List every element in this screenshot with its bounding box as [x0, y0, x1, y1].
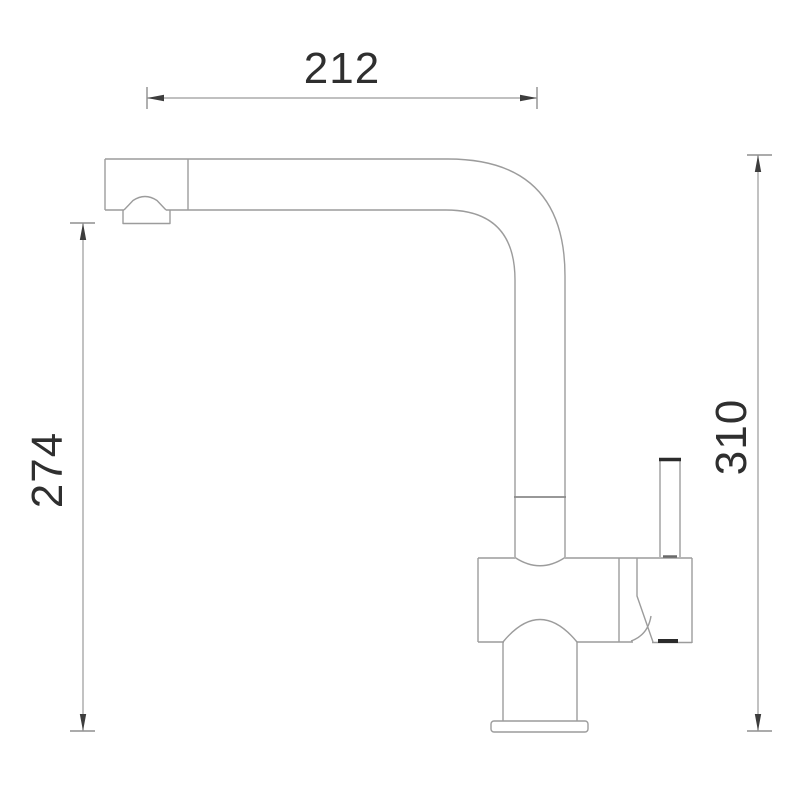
spout-top-edge-and-outer-elbow [105, 159, 565, 557]
faucet-dimension-diagram: 212 274 310 [0, 0, 800, 800]
dimension-total-height: 310 [707, 155, 772, 731]
dimension-label-spout-height: 274 [23, 432, 72, 508]
arrow-up-icon [80, 223, 86, 240]
base-neck-dome [503, 620, 577, 643]
arrow-left-icon [147, 95, 164, 101]
aerator-dome [124, 197, 166, 211]
riser-bottom-bowl [515, 558, 565, 566]
housing-inner-diagonal [637, 558, 653, 642]
faucet-outline [105, 159, 692, 732]
dimension-spout-reach: 212 [147, 44, 537, 109]
arrow-right-icon [520, 95, 537, 101]
dimension-label-total-height: 310 [707, 399, 756, 475]
technical-drawing-canvas: 212 274 310 [0, 0, 800, 800]
dimension-label-spout-reach: 212 [304, 44, 380, 93]
arrow-up-icon [755, 155, 761, 172]
spout-bottom-edge-and-inner-elbow [166, 210, 515, 557]
base-flange [491, 721, 588, 732]
dimension-spout-height: 274 [23, 223, 95, 731]
arrow-down-icon [80, 714, 86, 731]
lever-handle [660, 459, 680, 557]
arrow-down-icon [755, 714, 761, 731]
aerator-box [123, 210, 170, 224]
